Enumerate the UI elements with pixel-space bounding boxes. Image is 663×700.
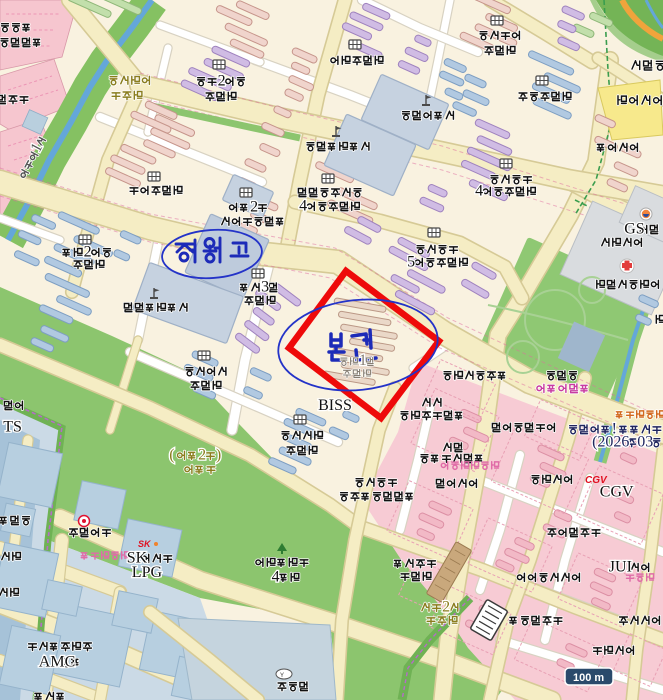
svg-text:TS: TS bbox=[3, 419, 22, 436]
svg-text:Y: Y bbox=[280, 673, 284, 679]
svg-text:GS: GS bbox=[624, 221, 644, 238]
svg-text:SK: SK bbox=[138, 539, 152, 549]
svg-text:03: 03 bbox=[637, 434, 653, 451]
svg-text:2: 2 bbox=[218, 73, 226, 90]
svg-text:AMC: AMC bbox=[39, 654, 75, 671]
svg-text:BISS: BISS bbox=[318, 397, 352, 414]
svg-text:3: 3 bbox=[261, 279, 269, 296]
svg-text:4: 4 bbox=[299, 198, 307, 215]
svg-text:2: 2 bbox=[84, 244, 92, 261]
svg-text:2: 2 bbox=[250, 199, 258, 216]
svg-text:5: 5 bbox=[407, 254, 415, 271]
svg-text:4: 4 bbox=[475, 183, 483, 200]
svg-text:LPG: LPG bbox=[132, 564, 163, 581]
svg-text:JUI: JUI bbox=[609, 559, 632, 576]
svg-text:2: 2 bbox=[198, 447, 206, 464]
svg-text:): ) bbox=[216, 447, 221, 464]
svg-text:(2026: (2026 bbox=[592, 434, 629, 451]
svg-text:(: ( bbox=[169, 447, 174, 464]
svg-text:1: 1 bbox=[359, 352, 367, 369]
svg-text:CGV: CGV bbox=[600, 484, 634, 501]
svg-text:2: 2 bbox=[442, 599, 450, 616]
svg-text:4: 4 bbox=[272, 569, 280, 586]
svg-text:100 m: 100 m bbox=[573, 672, 604, 684]
